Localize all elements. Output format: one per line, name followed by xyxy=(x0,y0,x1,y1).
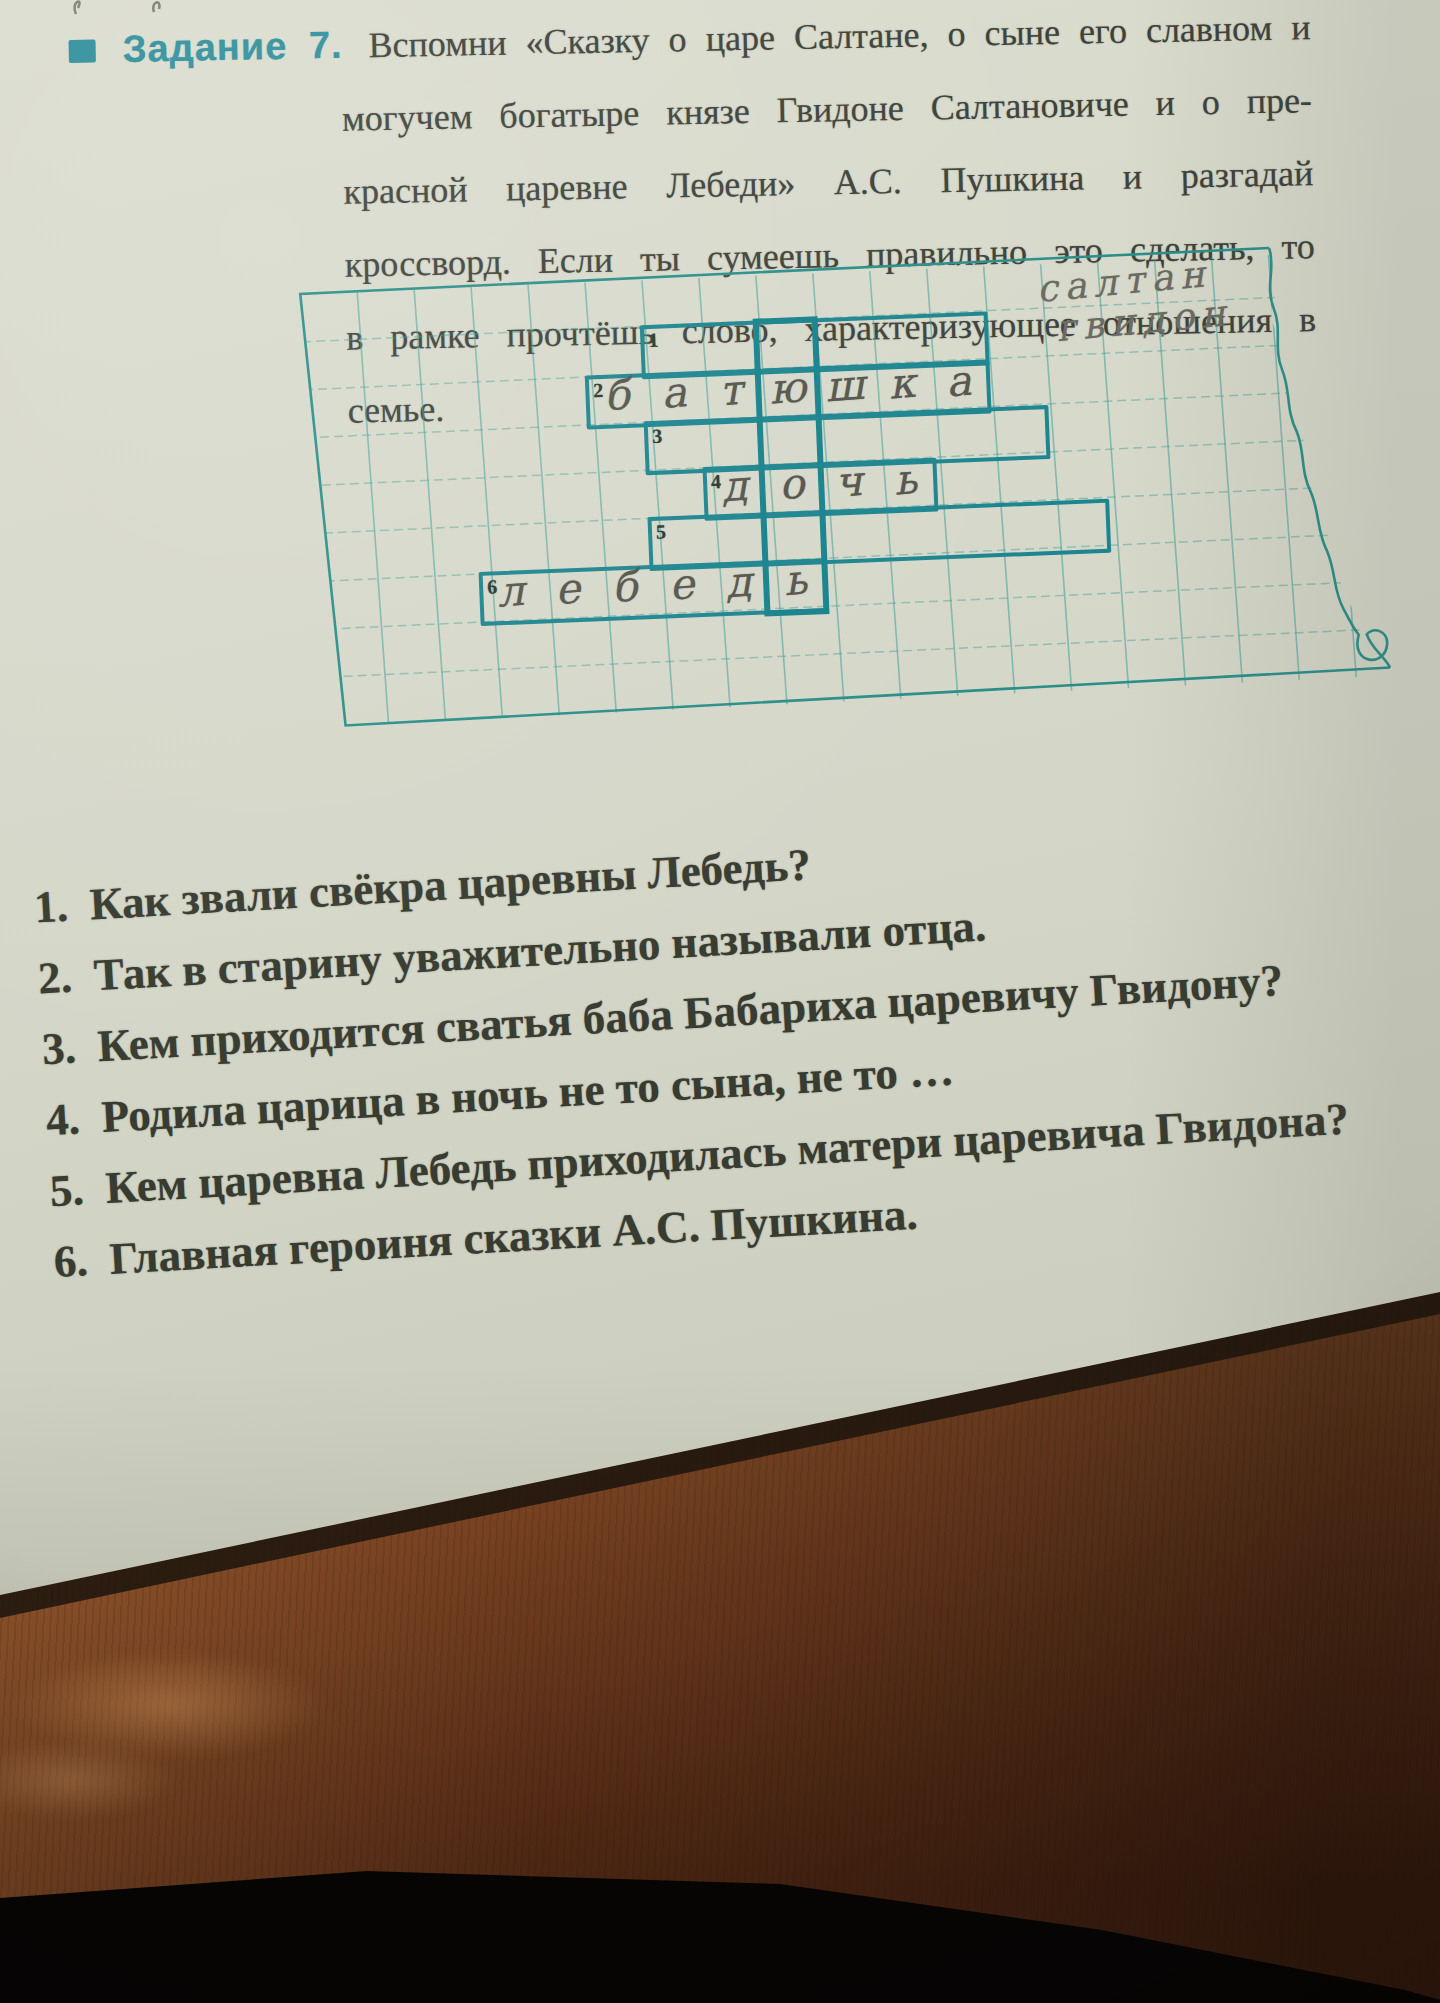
crossword-letter: д xyxy=(708,556,769,618)
crossword-letter: л xyxy=(480,565,541,627)
crossword-number: 1 xyxy=(648,329,659,352)
crossword-grid: 12батюшка34дочь56лебедь салтан гвидон xyxy=(286,203,1440,749)
crossword-letter: б xyxy=(594,560,655,622)
question-number: 5. xyxy=(24,1154,86,1228)
crossword-letter: е xyxy=(537,562,598,624)
questions-list: 1.Как звали свёкра царевны Лебедь?2.Так … xyxy=(8,794,1440,1299)
crossword-letter: е xyxy=(651,558,712,620)
square-bullet-icon xyxy=(68,39,95,63)
crossword-framed-column xyxy=(753,316,830,616)
question-number: 2. xyxy=(12,942,74,1016)
question-number: 6. xyxy=(28,1225,90,1299)
crossword-number: 3 xyxy=(652,425,663,448)
crossword-number: 5 xyxy=(656,520,667,543)
task-label: Задание 7. xyxy=(122,24,343,70)
crossword-letter: б xyxy=(587,368,648,430)
question-number: 4. xyxy=(20,1083,82,1157)
question-number: 1. xyxy=(8,871,70,945)
task-text: Вспомни «Сказку о царе Салтане, о сыне е… xyxy=(368,7,1311,65)
question-number: 3. xyxy=(16,1013,78,1087)
